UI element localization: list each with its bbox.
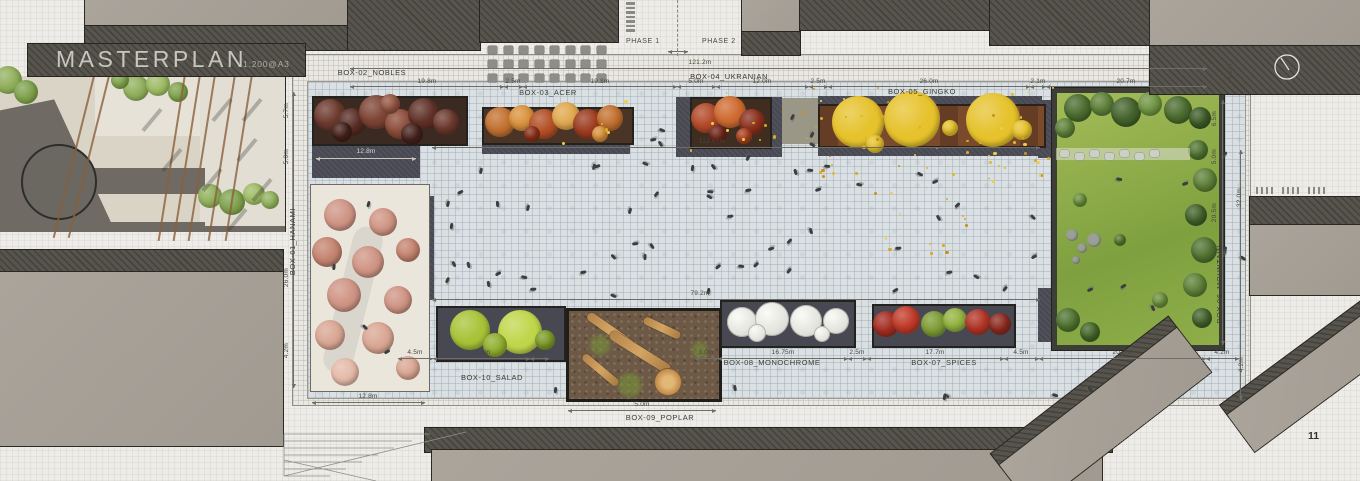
north-arrow-icon [1272, 52, 1302, 82]
dimension-label: 4.5m [407, 350, 422, 357]
phase-2-label: PHASE 2 [702, 38, 736, 45]
dimension-label: 17.7m [925, 350, 944, 357]
dimension-line [716, 86, 809, 87]
box-label: BOX-08_MONOCHROME [724, 359, 821, 367]
dimension-line [1046, 86, 1207, 87]
box-label: BOX-06_MOUNTAIN [1216, 245, 1224, 324]
box-label: BOX-01_HANAMI [289, 208, 297, 275]
phase-divider-line [677, 0, 678, 56]
dimension-label: 20.7m [1112, 350, 1131, 357]
dimension-line [312, 402, 425, 403]
dimension-label: 2.5m [505, 79, 520, 86]
dimension-line [1206, 358, 1239, 359]
dimension-line [504, 86, 523, 87]
dimension-label: 4.2m [1214, 350, 1229, 357]
dimension-line [695, 358, 718, 359]
dimension-line [809, 86, 828, 87]
dimension-label: 2.5m [849, 350, 864, 357]
dimension-line [1004, 358, 1039, 359]
dimension-label: 2.5m [810, 79, 825, 86]
dimension-label: 6.5m [1212, 111, 1219, 126]
box-label: BOX-10_SALAD [461, 374, 523, 382]
dimension-line [1039, 358, 1206, 359]
dimension-label: 5.0m [1212, 149, 1219, 164]
masterplan-drawing: MASTERPLAN 1:200@A3 11 PHASE 1 PHASE 2 1… [0, 0, 1360, 481]
box-label: BOX-09_POPLAR [626, 414, 694, 422]
dimension-label: 4.2m [1239, 357, 1246, 372]
dimension-label: 19.8m [590, 79, 609, 86]
box-label: BOX-03_ACER [519, 89, 577, 97]
dimension-line [432, 299, 1040, 300]
page-title: MASTERPLAN [56, 46, 247, 73]
dimension-label: 121.2m [689, 60, 712, 67]
dimension-label: 2.1m [1030, 79, 1045, 86]
dimension-label: 26.0m [919, 79, 938, 86]
dimension-line [350, 68, 1207, 69]
box-label: BOX-04_UKRANIAN [690, 73, 768, 81]
box-label: BOX-07_SPICES [911, 359, 977, 367]
dimension-label: 2.5m [531, 350, 546, 357]
dimension-label: 5.0m [634, 402, 649, 409]
dimension-line [568, 410, 716, 411]
phase-dimension-tick [668, 51, 688, 52]
dimension-label: 16.75m [772, 350, 795, 357]
dimension-line [350, 86, 504, 87]
dimension-label: 20.5m [1212, 203, 1219, 222]
dimension-label: 112.65m [699, 139, 725, 146]
dimension-label: 5.0m [284, 149, 291, 164]
dimension-label: 32.0m [1237, 188, 1244, 207]
dimension-line [530, 358, 549, 359]
box-label: BOX-02_NOBLES [338, 69, 406, 77]
dimension-line [398, 358, 433, 359]
dimension-line [677, 86, 716, 87]
box-label: BOX-05_GINGKO [888, 88, 956, 96]
dimension-line [316, 158, 416, 159]
dimension-label: 12.5m [471, 350, 490, 357]
dimension-label: 4.2m [284, 343, 291, 358]
dimension-line [432, 147, 1040, 148]
dimension-line [848, 358, 867, 359]
page-number: 11 [1308, 430, 1319, 442]
dimension-label: 12.8m [358, 394, 377, 401]
dimension-label: 3.0m [698, 350, 713, 357]
dimension-label: 12.8m [356, 149, 375, 156]
dimension-label: 20.7m [1116, 79, 1135, 86]
dimension-label: 19.8m [417, 79, 436, 86]
dimension-line [1030, 86, 1046, 87]
drawing-scale: 1:200@A3 [243, 59, 290, 69]
dimension-line [433, 358, 530, 359]
dimension-label: 4.2m [1228, 64, 1235, 79]
dimension-label: 5.7m [284, 103, 291, 118]
dimension-label: 4.5m [1013, 350, 1028, 357]
dimension-line [523, 86, 677, 87]
phase-1-label: PHASE 1 [626, 38, 660, 45]
dimension-label: 79.2m [690, 291, 709, 298]
